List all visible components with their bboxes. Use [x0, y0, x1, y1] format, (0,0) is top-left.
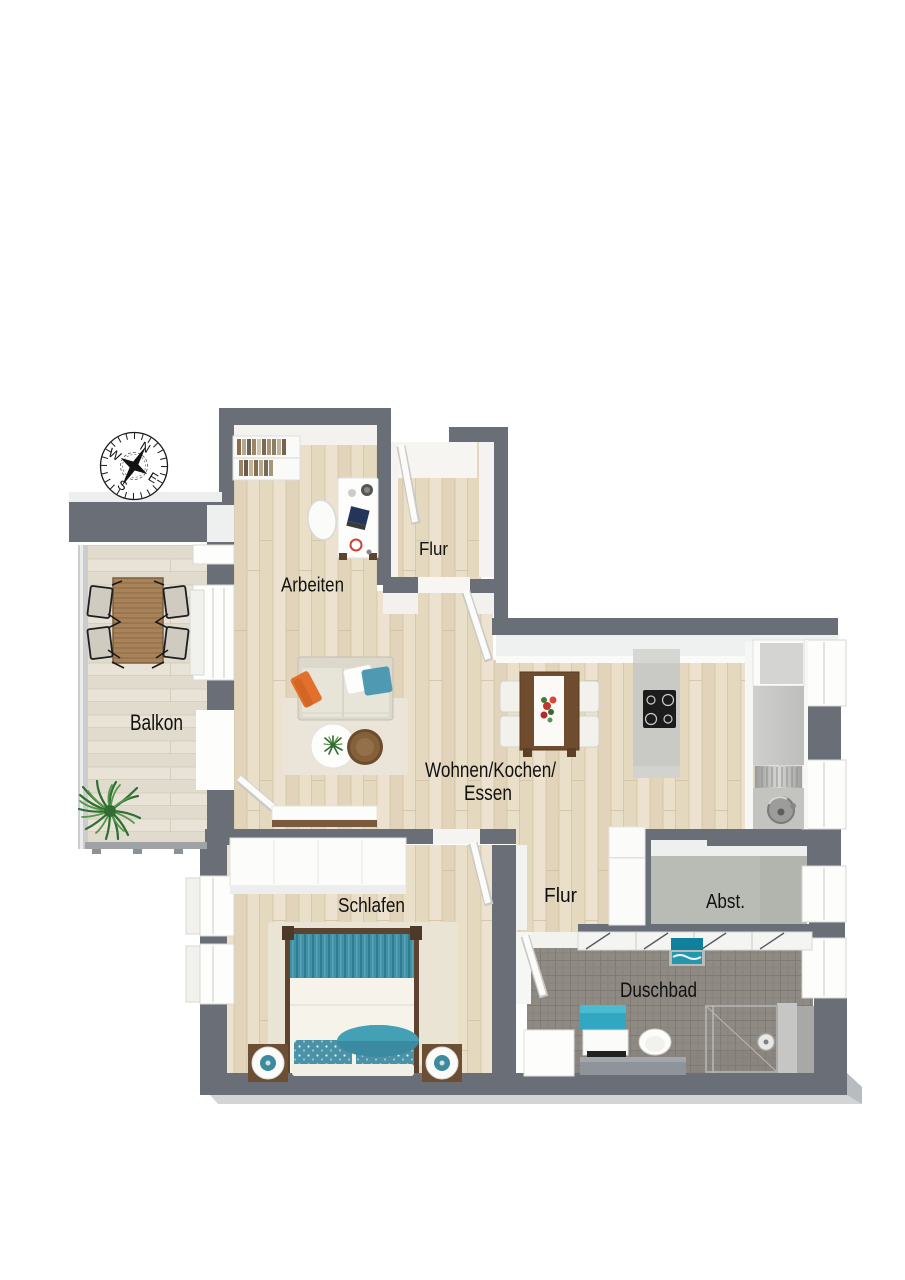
svg-text:Flur: Flur	[544, 885, 577, 907]
svg-text:Duschbad: Duschbad	[620, 979, 697, 1002]
svg-text:Abst.: Abst.	[706, 891, 745, 913]
svg-text:Balkon: Balkon	[130, 710, 183, 735]
svg-text:Arbeiten: Arbeiten	[281, 575, 344, 597]
svg-text:Wohnen/Kochen/: Wohnen/Kochen/	[425, 759, 556, 782]
svg-text:Schlafen: Schlafen	[338, 895, 405, 917]
svg-text:Essen: Essen	[464, 782, 512, 805]
svg-text:Flur: Flur	[419, 539, 448, 559]
